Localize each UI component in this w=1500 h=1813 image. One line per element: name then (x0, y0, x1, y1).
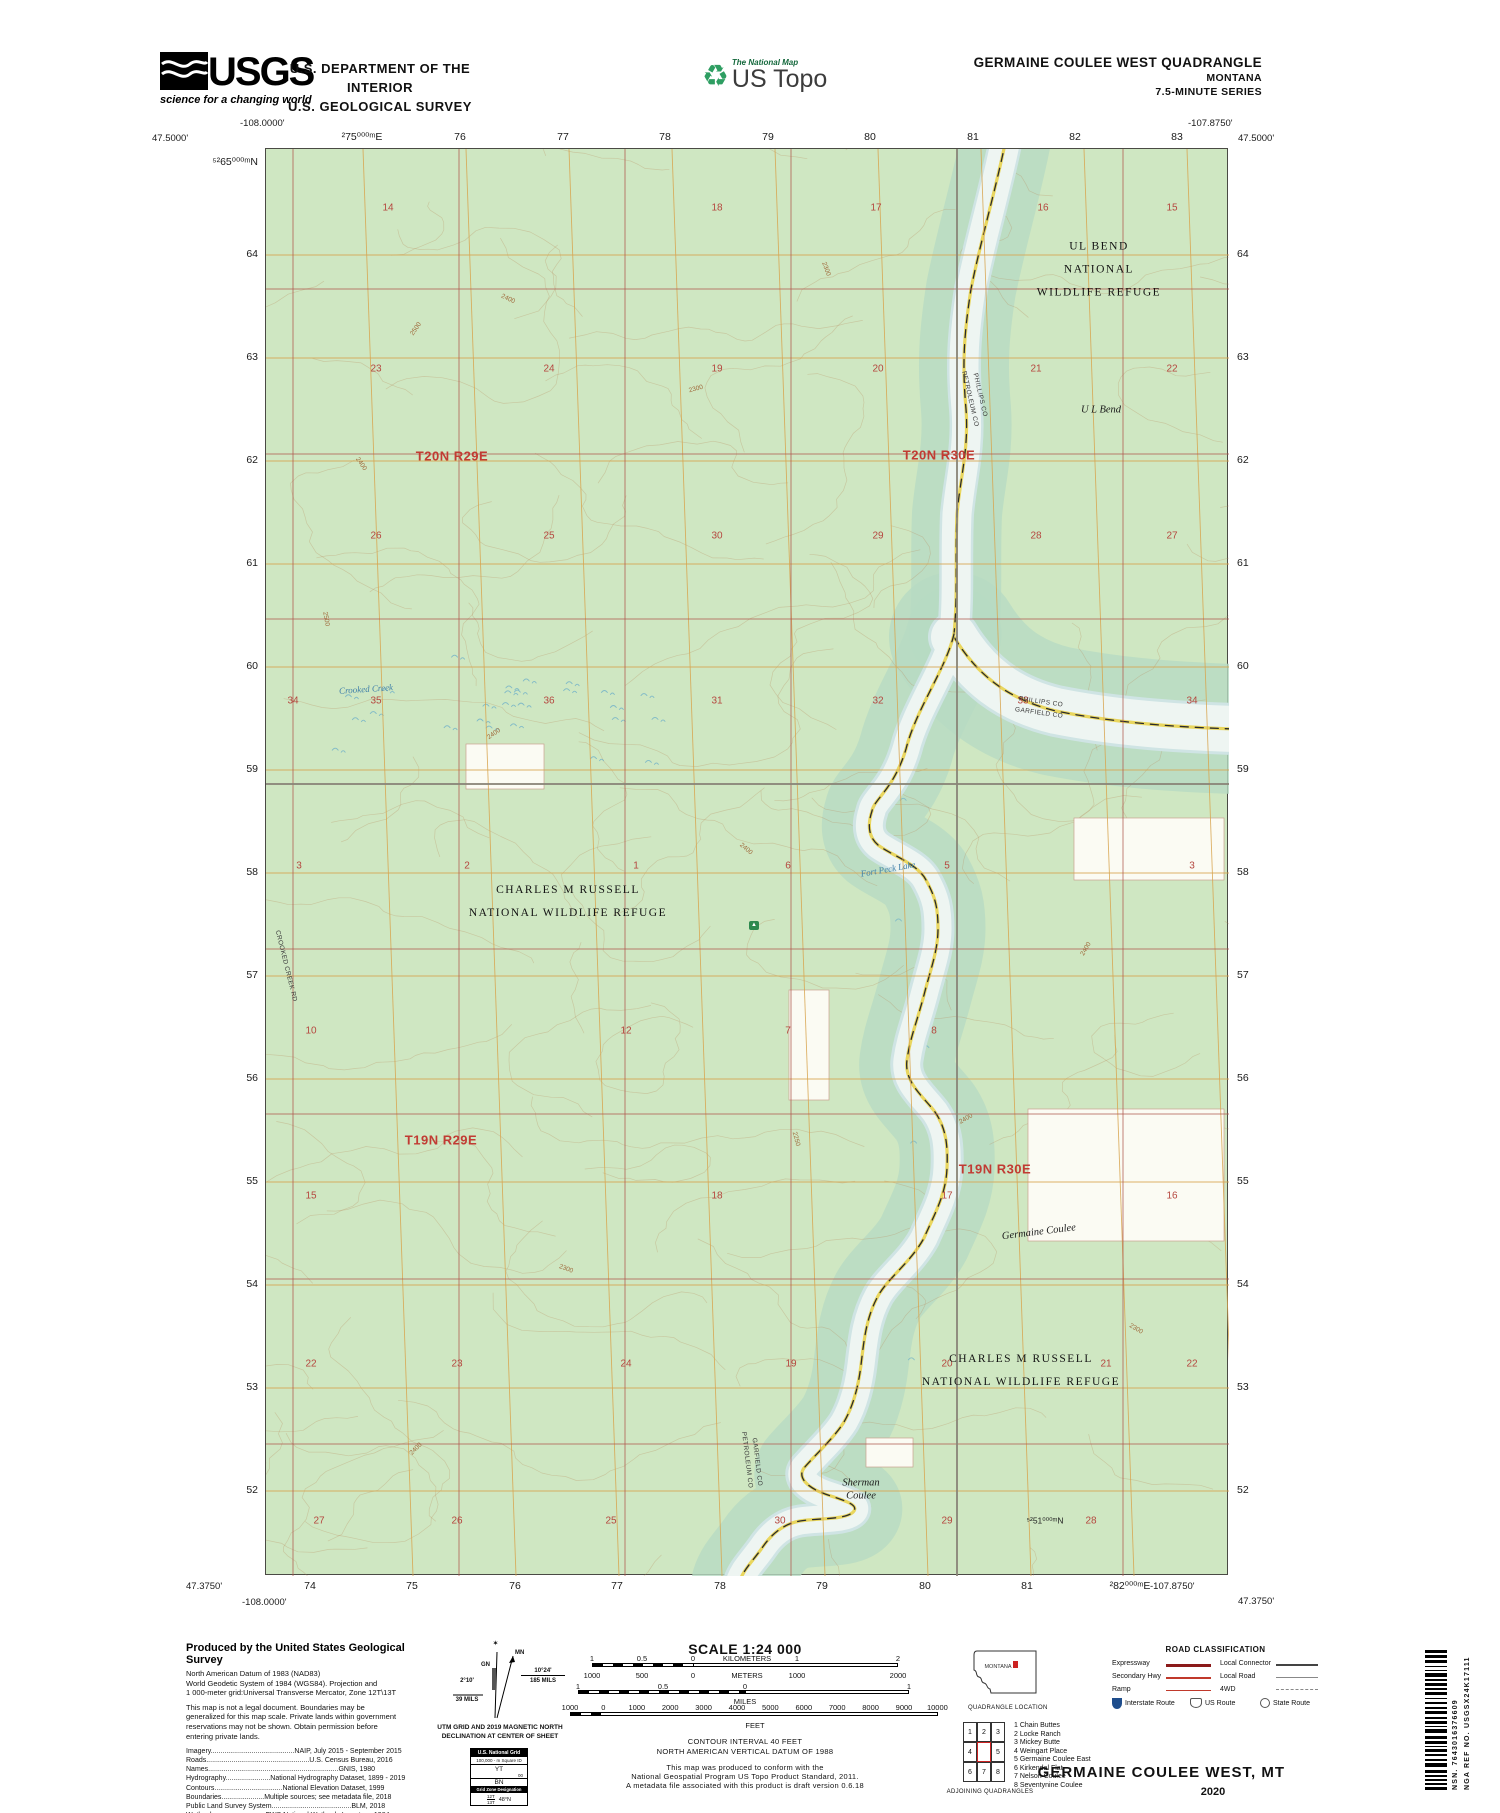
grid-label-right: 62 (1237, 454, 1249, 466)
section-number: 5 (944, 861, 950, 872)
adjoining-cell: 2 (977, 1722, 991, 1742)
adjoining-cell: 8 (991, 1762, 1005, 1782)
scale-bar-segments (593, 1664, 694, 1666)
grid-label-right: 61 (1237, 557, 1249, 569)
adjoining-cell: 7 (977, 1762, 991, 1782)
section-number: 8 (931, 1026, 937, 1037)
expressway-line (1166, 1664, 1211, 1667)
grid-label-right: 58 (1237, 866, 1249, 878)
dept-line2: U.S. GEOLOGICAL SURVEY (255, 98, 505, 117)
adjoining-cell: 4 (963, 1742, 977, 1762)
quad-series: 7.5-MINUTE SERIES (962, 86, 1262, 98)
section-number: 3 (1189, 861, 1195, 872)
section-number: 30 (711, 531, 722, 542)
scale-bar (570, 1712, 938, 1716)
barcode-bar (1425, 1683, 1447, 1685)
section-number: 19 (785, 1359, 796, 1370)
barcode-bar (1425, 1741, 1447, 1744)
section-number: 26 (370, 531, 381, 542)
adjoining-quadrangles: 12345678 (963, 1722, 1007, 1784)
scale-ft-label: 9000 (896, 1703, 913, 1712)
section-number: 30 (774, 1516, 785, 1527)
conformance-note3: A metadata file associated with this pro… (626, 1781, 864, 1790)
road-class-label: 4WD (1220, 1686, 1236, 1693)
section-number: 21 (1030, 364, 1041, 375)
datum-line: World Geodetic System of 1984 (WGS84). P… (186, 1679, 436, 1689)
contour-interval-note: CONTOUR INTERVAL 40 FEET (688, 1737, 802, 1746)
grid-label-left: 59 (246, 763, 258, 775)
sheet-title: GERMAINE COULEE WEST, MT (1038, 1764, 1285, 1781)
barcode-bar (1425, 1660, 1447, 1663)
scale-km-label: KILOMETERS (723, 1654, 771, 1663)
section-number: 24 (620, 1359, 631, 1370)
section-number: 18 (711, 203, 722, 214)
map-label: U L Bend (1081, 405, 1121, 418)
section-number: 22 (1186, 1359, 1197, 1370)
grid-label-bottom: 81 (1021, 1580, 1033, 1592)
barcode-bar (1425, 1707, 1447, 1709)
scale-bar (578, 1690, 909, 1694)
section-number: 29 (872, 531, 883, 542)
grid-label-right: 63 (1237, 351, 1249, 363)
scale-km-label: 1 (590, 1654, 594, 1663)
barcode-bar (1425, 1670, 1447, 1671)
section-number: 17 (870, 203, 881, 214)
grid-label-top: 76 (454, 131, 466, 143)
section-number: 3 (296, 861, 302, 872)
section-number: 2 (464, 861, 470, 872)
credit-line: Imagery.................................… (186, 1747, 436, 1756)
adjoining-caption: ADJOINING QUADRANGLES (947, 1789, 1034, 1795)
section-number: 17 (941, 1191, 952, 1202)
section-number: 36 (543, 696, 554, 707)
gn-mils: 39 MILS (447, 1697, 487, 1703)
barcode-bar (1425, 1698, 1447, 1700)
grid-label-left: 62 (246, 454, 258, 466)
barcode-bar (1425, 1711, 1447, 1714)
section-number: 19 (711, 364, 722, 375)
scale-km-label: 0 (691, 1654, 695, 1663)
scale-ft-label: 10000 (927, 1703, 948, 1712)
section-number: 6 (785, 861, 791, 872)
interstate-route-item: Interstate Route (1112, 1698, 1175, 1709)
credit-line: Public Land Survey System...............… (186, 1802, 436, 1811)
grid-label-left: 57 (246, 969, 258, 981)
adjoining-cell: 6 (963, 1762, 977, 1782)
grid-label-right: 54 (1237, 1278, 1249, 1290)
grid-label-left: 63 (246, 351, 258, 363)
map-label: ⁵²51⁰⁰⁰ᵐN (1026, 1516, 1063, 1527)
map-label: Sherman Coulee (842, 1477, 879, 1502)
scale-km-label: 0.5 (637, 1654, 647, 1663)
declination-caption1: UTM GRID AND 2019 MAGNETIC NORTH (395, 1724, 605, 1731)
scale-m-label: METERS (731, 1671, 762, 1680)
map-label: T20N R30E (903, 448, 975, 463)
dept-line1: U.S. DEPARTMENT OF THE INTERIOR (255, 60, 505, 98)
barcode-bar (1425, 1679, 1447, 1681)
section-number: 16 (1037, 203, 1048, 214)
barcode-bar (1425, 1655, 1447, 1658)
grid-label-bottom: 77 (611, 1580, 623, 1592)
corner-bottom-right-lat: 47.3750' (1238, 1596, 1274, 1607)
scale-ft-label: 5000 (762, 1703, 779, 1712)
corner-bottom-right-lon: -107.8750' (1150, 1581, 1195, 1592)
grid-label-left: 53 (246, 1381, 258, 1393)
grid-label-bottom: 76 (509, 1580, 521, 1592)
scale-bar-segments (579, 1691, 746, 1693)
grid-label-left: 54 (246, 1278, 258, 1290)
scale-ft-label: 0 (601, 1703, 605, 1712)
section-number: 34 (1186, 696, 1197, 707)
grid-label-right: 59 (1237, 763, 1249, 775)
barcode-bar (1425, 1717, 1447, 1719)
grid-label-right: 53 (1237, 1381, 1249, 1393)
scale-bar (592, 1663, 898, 1667)
produced-title: Produced by the United States Geological… (186, 1642, 436, 1666)
grid-label-bottom: 79 (816, 1580, 828, 1592)
shield-label: Interstate Route (1125, 1700, 1175, 1707)
scale-ft-label: 1000 (628, 1703, 645, 1712)
state-route-shield-icon (1260, 1698, 1270, 1708)
grid-label-left: 58 (246, 866, 258, 878)
barcode-bar (1425, 1688, 1447, 1690)
section-number: 35 (370, 696, 381, 707)
scale-ft-label: 7000 (829, 1703, 846, 1712)
scale-m-label: 1000 (584, 1671, 601, 1680)
usng-square-label: 100,000 - m Square ID (471, 1757, 527, 1765)
grid-label-top: 79 (762, 131, 774, 143)
grid-label-left: 56 (246, 1072, 258, 1084)
scale-m-label: 500 (636, 1671, 649, 1680)
scale-km-label: 2 (896, 1654, 900, 1663)
grid-label-right: 60 (1237, 660, 1249, 672)
section-number: 16 (1166, 1191, 1177, 1202)
grid-label-left: ⁵²65⁰⁰⁰ᵐN (212, 156, 258, 168)
credit-line: Hydrography.......................Nation… (186, 1774, 436, 1783)
barcode-bar (1425, 1746, 1447, 1747)
us-route-item: US Route (1190, 1698, 1235, 1708)
interstate-shield-icon (1112, 1698, 1122, 1709)
corner-top-left-lat: 47.5000' (152, 133, 188, 144)
adjoining-cell: 3 (991, 1722, 1005, 1742)
usgs-topo-sheet: USGS science for a changing world U.S. D… (0, 0, 1500, 1813)
barcode-bar (1425, 1775, 1447, 1777)
datum-line: North American Datum of 1983 (NAD83) (186, 1669, 436, 1679)
scale-ft-label: 8000 (862, 1703, 879, 1712)
adjoining-name: 2 Locke Ranch (1014, 1731, 1091, 1740)
road-class-label: Local Connector (1220, 1660, 1271, 1667)
road-class-label: Local Road (1220, 1673, 1255, 1680)
usng-box: U.S. National Grid 100,000 - m Square ID… (470, 1748, 528, 1806)
grid-label-left: 52 (246, 1484, 258, 1496)
grid-label-top: 82 (1069, 131, 1081, 143)
scale-ft-unit: FEET (745, 1721, 764, 1730)
sheet-year: 2020 (1201, 1786, 1225, 1798)
fourwd-line (1276, 1689, 1318, 1690)
gn-degrees: 2°10' (447, 1678, 487, 1684)
barcode-bar (1425, 1736, 1447, 1739)
grid-label-top: 77 (557, 131, 569, 143)
usgs-wave-icon (160, 52, 208, 92)
adjoining-cell (977, 1742, 991, 1762)
grid-north-label: GN (481, 1662, 490, 1668)
map-label: CHARLES M RUSSELL NATIONAL WILDLIFE REFU… (469, 879, 667, 925)
barcode-bar (1425, 1692, 1447, 1695)
section-number: 23 (451, 1359, 462, 1370)
section-number: 28 (1030, 531, 1041, 542)
grid-label-right: 55 (1237, 1175, 1249, 1187)
grid-label-top: 81 (967, 131, 979, 143)
section-number: 26 (451, 1516, 462, 1527)
barcode-bar (1425, 1770, 1447, 1773)
local-road-line (1276, 1677, 1318, 1678)
us-route-shield-icon (1190, 1698, 1202, 1708)
state-locator: MONTANA QUADRANGLE LOCATION (968, 1648, 1048, 1711)
grid-label-bottom: ²82⁰⁰⁰ᵐE (1110, 1580, 1151, 1592)
section-number: 25 (605, 1516, 616, 1527)
scale-km-label: 1 (795, 1654, 799, 1663)
barcode-bar (1425, 1749, 1447, 1752)
adjoining-cell: 1 (963, 1722, 977, 1742)
magnetic-north-label: MN (515, 1650, 524, 1656)
section-number: 20 (872, 364, 883, 375)
section-number: 1 (633, 861, 639, 872)
scale-ft-label: 3000 (695, 1703, 712, 1712)
quadrangle-location-caption: QUADRANGLE LOCATION (968, 1705, 1048, 1711)
usng-gzd-label: Grid Zone Designation (471, 1786, 527, 1793)
section-number: 24 (543, 364, 554, 375)
barcode-bar (1425, 1779, 1447, 1780)
usng-id-bottom: BN (471, 1779, 527, 1786)
mn-mils: 185 MILS (521, 1678, 565, 1684)
section-number: 12 (620, 1026, 631, 1037)
grid-label-top: ²75⁰⁰⁰ᵐE (342, 131, 383, 143)
ustopo-label: US Topo (732, 67, 827, 92)
map-area: 1418171615232419202122262530292827343536… (265, 148, 1228, 1575)
usng-title: U.S. National Grid (471, 1749, 527, 1757)
section-number: 14 (382, 203, 393, 214)
credit-line: Roads...................................… (186, 1756, 436, 1765)
map-label: UL BEND NATIONAL WILDLIFE REFUGE (1035, 236, 1163, 305)
section-number: 25 (543, 531, 554, 542)
adjoining-name: 4 Weingart Place (1014, 1748, 1091, 1757)
adjoining-name: 3 Mickey Butte (1014, 1739, 1091, 1748)
shield-label: State Route (1273, 1700, 1310, 1707)
shield-label: US Route (1205, 1700, 1235, 1707)
grid-label-bottom: 78 (714, 1580, 726, 1592)
section-number: 15 (305, 1191, 316, 1202)
grid-label-bottom: 74 (304, 1580, 316, 1592)
usng-id-top: YT (471, 1765, 527, 1773)
corner-top-right-lat: 47.5000' (1238, 133, 1274, 144)
usng-gzd-lat: 48°N (499, 1797, 511, 1803)
barcode (1425, 1650, 1447, 1790)
state-route-item: State Route (1260, 1698, 1310, 1708)
road-class-label: Ramp (1112, 1686, 1131, 1693)
adjoining-name: 1 Chain Buttes (1014, 1722, 1091, 1731)
section-number: 7 (785, 1026, 791, 1037)
true-north-star: ✶ (493, 1640, 498, 1647)
ramp-line (1166, 1690, 1211, 1691)
section-number: 10 (305, 1026, 316, 1037)
barcode-bar (1425, 1666, 1447, 1668)
section-number: 34 (287, 696, 298, 707)
datum-line: 1 000-meter grid:Universal Transverse Me… (186, 1688, 436, 1698)
grid-label-top: 78 (659, 131, 671, 143)
section-number: 23 (370, 364, 381, 375)
barcode-bar (1425, 1763, 1447, 1767)
corner-top-right-lon: -107.8750' (1188, 118, 1233, 129)
section-number: 31 (711, 696, 722, 707)
grid-label-right: 56 (1237, 1072, 1249, 1084)
map-label: T19N R29E (405, 1133, 477, 1148)
vertical-datum-note: NORTH AMERICAN VERTICAL DATUM OF 1988 (657, 1747, 834, 1756)
section-number: 18 (711, 1191, 722, 1202)
ustopo-logo: ♻ The National Map US Topo (702, 58, 827, 92)
corner-bottom-left-lon: -108.0000' (242, 1597, 287, 1608)
section-number: 15 (1166, 203, 1177, 214)
barcode-bar (1425, 1702, 1447, 1705)
road-class-label: Expressway (1112, 1660, 1150, 1667)
map-label: CHARLES M RUSSELL NATIONAL WILDLIFE REFU… (922, 1348, 1120, 1394)
section-number: 22 (305, 1359, 316, 1370)
scale-m-label: 1000 (789, 1671, 806, 1680)
grid-label-left: 64 (246, 248, 258, 260)
scale-m-label: 0 (691, 1671, 695, 1680)
grid-label-bottom: 80 (919, 1580, 931, 1592)
declination-caption2: DECLINATION AT CENTER OF SHEET (395, 1733, 605, 1740)
scale-ft-label: 4000 (729, 1703, 746, 1712)
section-number: 32 (872, 696, 883, 707)
corner-top-left-lon: -108.0000' (240, 118, 285, 129)
grid-label-left: 55 (246, 1175, 258, 1187)
scale-m-label: 2000 (890, 1671, 907, 1680)
legal-line: This map is not a legal document. Bounda… (186, 1703, 436, 1713)
barcode-bar (1425, 1729, 1447, 1733)
ustopo-icon: ♻ (702, 62, 729, 92)
credit-line: Names...................................… (186, 1765, 436, 1774)
grid-label-top: 80 (864, 131, 876, 143)
barcode-bar (1425, 1787, 1447, 1790)
road-classification: ROAD CLASSIFICATION Expressway Secondary… (1108, 1645, 1323, 1715)
barcode-bar (1425, 1754, 1447, 1756)
scale-ft-label: 6000 (795, 1703, 812, 1712)
svg-text:MONTANA: MONTANA (984, 1664, 1011, 1670)
credit-line: Contours................................… (186, 1784, 436, 1793)
section-number: 22 (1166, 364, 1177, 375)
secondary-hwy-line (1166, 1677, 1211, 1679)
barcode-bar (1425, 1783, 1447, 1785)
legal-line: generalized for this map scale. Private … (186, 1712, 436, 1722)
local-connector-line (1276, 1664, 1318, 1666)
grid-label-right: 64 (1237, 248, 1249, 260)
grid-label-left: 60 (246, 660, 258, 672)
corner-bottom-left-lat: 47.3750' (186, 1581, 222, 1592)
conformance-note2: National Geospatial Program US Topo Prod… (631, 1772, 859, 1781)
section-number: 29 (941, 1516, 952, 1527)
road-class-title: ROAD CLASSIFICATION (1108, 1645, 1323, 1654)
barcode-bar (1425, 1721, 1447, 1724)
barcode-bar (1425, 1759, 1447, 1762)
adjoining-cell: 5 (991, 1742, 1005, 1762)
grid-label-right: 52 (1237, 1484, 1249, 1496)
barcode-bar (1425, 1726, 1447, 1727)
barcode-bar (1425, 1650, 1447, 1653)
section-number: 28 (1085, 1516, 1096, 1527)
section-number: 27 (313, 1516, 324, 1527)
scale-bar-segments (571, 1713, 604, 1715)
campground-icon: ▲ (749, 921, 759, 930)
section-number: 27 (1166, 531, 1177, 542)
mn-degrees: 10°24' (521, 1668, 565, 1676)
map-label: T19N R30E (959, 1162, 1031, 1177)
scale-ft-label: 1000 (562, 1703, 579, 1712)
department-header: U.S. DEPARTMENT OF THE INTERIOR U.S. GEO… (255, 60, 505, 117)
map-label: T20N R29E (416, 449, 488, 464)
road-class-label: Secondary Hwy (1112, 1673, 1161, 1680)
barcode-nsn-text: NSN. 7643016376609 (1452, 1650, 1459, 1790)
quad-title: GERMAINE COULEE WEST QUADRANGLE (962, 55, 1262, 70)
scale-ft-label: 2000 (662, 1703, 679, 1712)
quad-state: MONTANA (962, 72, 1262, 84)
grid-label-left: 61 (246, 557, 258, 569)
barcode-nga-text: NGA REF NO. USGSX24K17111 (1464, 1650, 1471, 1790)
quad-title-block: GERMAINE COULEE WEST QUADRANGLE MONTANA … (962, 55, 1262, 98)
grid-label-bottom: 75 (406, 1580, 418, 1592)
grid-label-top: 83 (1171, 131, 1183, 143)
usng-gzd-bottom: 13T (487, 1800, 495, 1805)
montana-outline: MONTANA (968, 1648, 1040, 1696)
conformance-note1: This map was produced to conform with th… (666, 1763, 823, 1772)
barcode-bar (1425, 1673, 1447, 1676)
credit-line: Boundaries......................Multiple… (186, 1793, 436, 1802)
grid-label-right: 57 (1237, 969, 1249, 981)
